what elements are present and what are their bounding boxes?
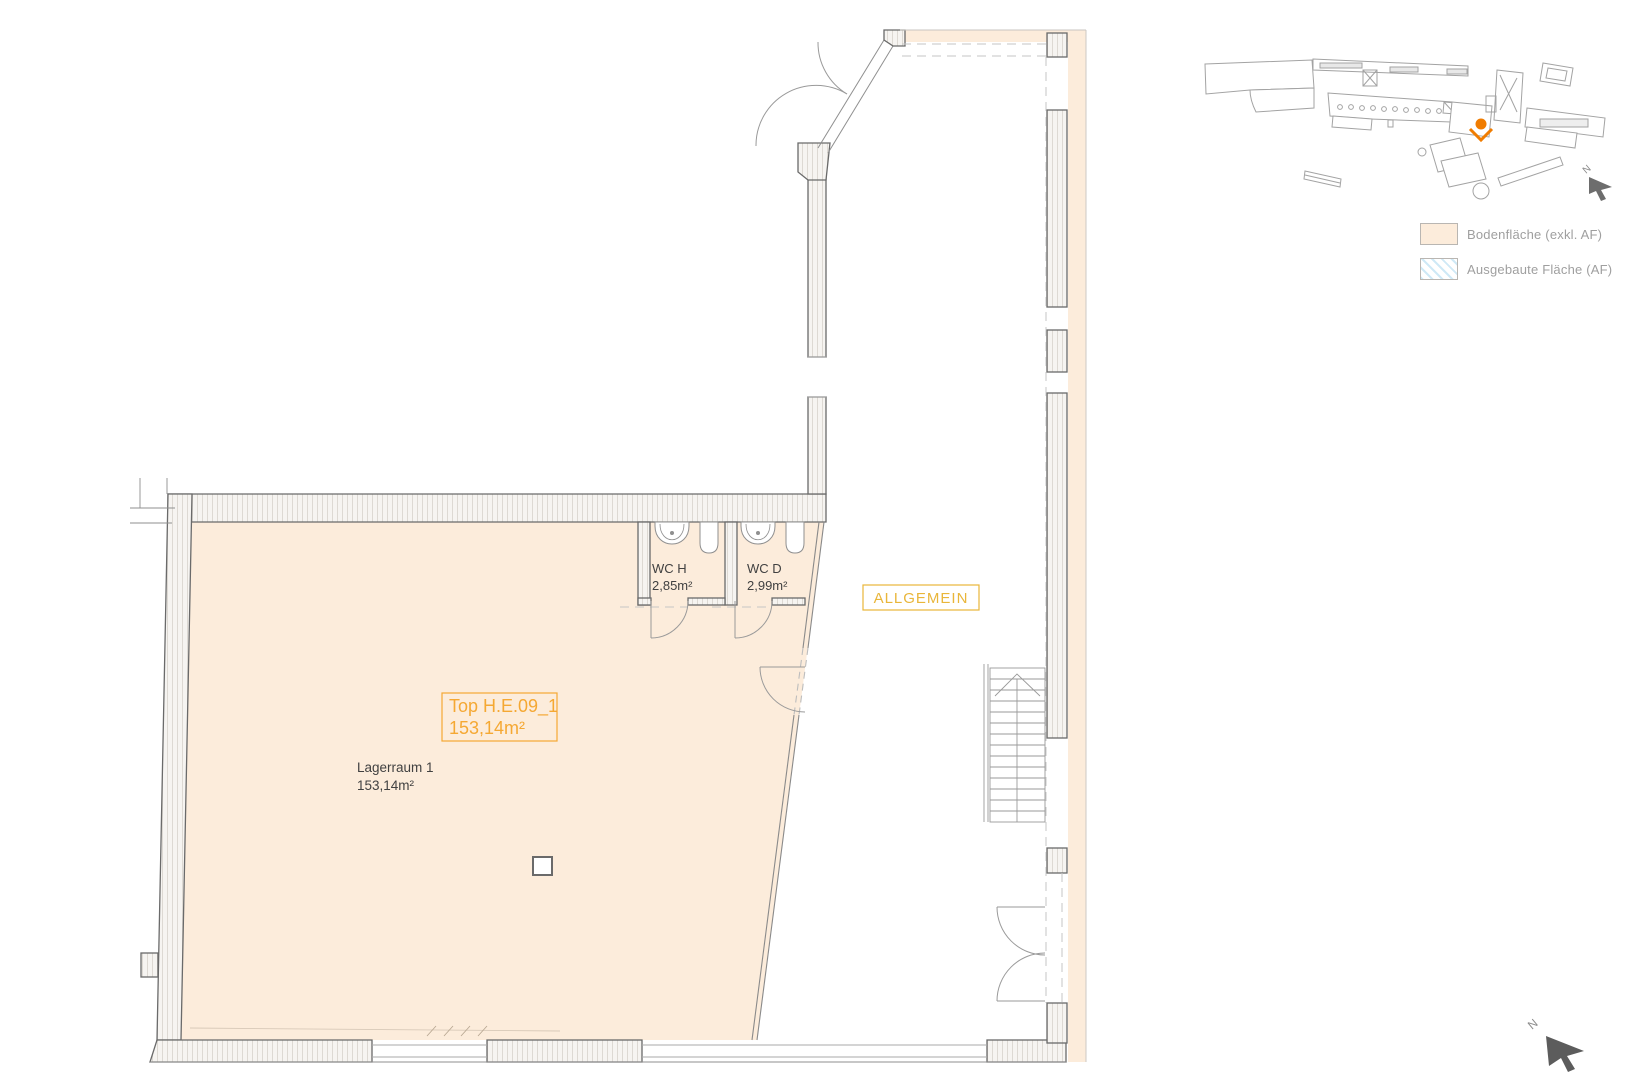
entrance-double-door (756, 42, 847, 146)
room-area: 153,14m² (357, 778, 415, 793)
wc-d-toilet (786, 522, 804, 553)
legend-item-bodenflaeche: Bodenfläche (exkl. AF) (1420, 222, 1628, 246)
stairs (984, 664, 1045, 822)
unit-label-line1: Top H.E.09_1 (449, 696, 558, 717)
wc-d-area: 2,99m² (747, 578, 788, 593)
floorplan-page: Top H.E.09_1 153,14m² Lagerraum 1 153,14… (0, 0, 1628, 1080)
wc-h-area: 2,85m² (652, 578, 693, 593)
wc-h-toilet (700, 522, 718, 553)
bodenflaeche-swatch (1420, 223, 1458, 245)
column (533, 857, 552, 875)
minimap-north-arrow: N (1581, 163, 1612, 201)
bodenflaeche-label: Bodenfläche (exkl. AF) (1467, 227, 1602, 242)
unit-label-line2: 153,14m² (449, 718, 525, 738)
legend: Bodenfläche (exkl. AF) Ausgebaute Fläche… (1420, 222, 1628, 292)
north-label: N (1525, 1016, 1541, 1032)
north-arrow: N (1525, 1016, 1584, 1072)
floorplan-svg: Top H.E.09_1 153,14m² Lagerraum 1 153,14… (0, 0, 1628, 1080)
legend-item-ausgebaute-flaeche: Ausgebaute Fläche (AF) (1420, 257, 1628, 281)
minimap: N (1205, 59, 1612, 201)
ausgebaute-flaeche-label: Ausgebaute Fläche (AF) (1467, 262, 1612, 277)
wc-d-name: WC D (747, 561, 782, 576)
minimap-north-label: N (1581, 163, 1594, 176)
ausgebaute-flaeche-swatch (1420, 258, 1458, 280)
floor-areas (181, 30, 1086, 1062)
right-floor-strip (1068, 36, 1086, 1062)
wc-h-name: WC H (652, 561, 687, 576)
right-double-door (997, 907, 1045, 1001)
allgemein-label: ALLGEMEIN (874, 590, 969, 607)
room-name: Lagerraum 1 (357, 760, 434, 775)
